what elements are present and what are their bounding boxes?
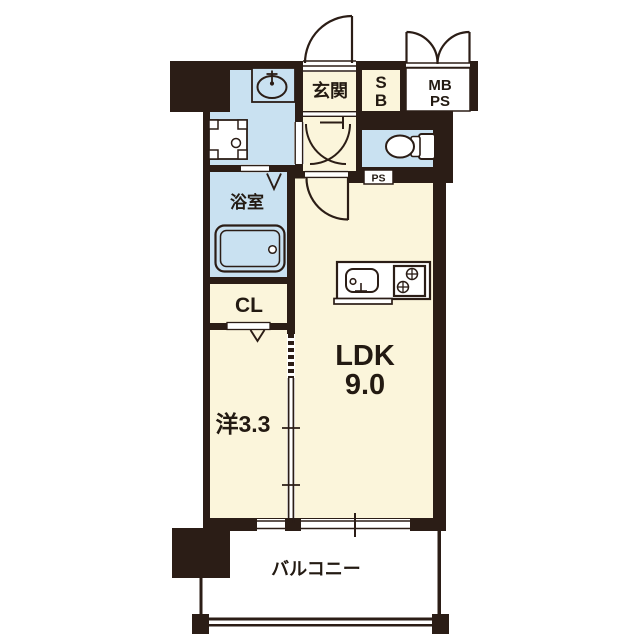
bathroom-door-opening: [241, 165, 269, 173]
wall-top-b: [356, 61, 406, 70]
wall-west: [203, 112, 210, 531]
stove-burner-2: [398, 282, 409, 293]
washbasin: [252, 68, 295, 102]
mbps-double-doors: [407, 32, 470, 64]
wall-partition-stub: [287, 323, 295, 334]
kitchen-counter: [334, 262, 430, 304]
wall-bath-top-left: [203, 165, 242, 172]
wall-hallway-pier: [348, 171, 356, 183]
pipe-space-label: PS: [371, 173, 385, 185]
toilet: [386, 134, 435, 159]
bathtub: [216, 226, 285, 272]
entrance-threshold: [303, 60, 356, 72]
balcony-rail-2: [209, 624, 432, 627]
shoebox-label-top: S: [375, 73, 386, 92]
ldk-door-sill: [305, 171, 348, 179]
wall-mbps-right: [470, 61, 478, 111]
western-room-label: 洋3.3: [216, 411, 271, 437]
washing-machine-pan: [209, 120, 247, 159]
genkan-label: 玄関: [312, 80, 348, 101]
genkan-step: [303, 111, 356, 117]
wall-bath-top-right: [268, 165, 303, 172]
wall-bath-bottom: [203, 277, 295, 284]
floor-plan-svg: 玄関 S B MB PS PS 浴室 CL 洋3.3 LDK 9.0 バルコニー: [0, 0, 640, 640]
closet-door-track: [227, 323, 270, 330]
wall-mass-bottomleft: [172, 528, 230, 578]
wall-cl-bottom-left: [203, 323, 227, 330]
entrance-door: [305, 16, 352, 63]
wall-mass-topleft: [170, 61, 230, 112]
balcony-left-line: [200, 578, 203, 617]
stove-burner-1: [407, 269, 418, 280]
balcony-right-line: [438, 531, 442, 614]
ldk-label: LDK: [335, 340, 395, 372]
washbasin-faucet-dot: [270, 81, 274, 85]
wall-sb-mbps: [400, 61, 406, 111]
balcony-post-right: [432, 614, 449, 634]
kitchen-toe-kick: [334, 299, 392, 305]
balcony-label: バルコニー: [271, 559, 361, 579]
meterbox-label-1: MB: [428, 77, 451, 94]
shoebox-label-bottom: B: [375, 91, 387, 110]
balcony-rail-1: [209, 618, 432, 621]
window-western-room: [257, 519, 285, 531]
wall-east: [433, 123, 446, 531]
closet-label: CL: [235, 294, 263, 317]
floor-plan: 玄関 S B MB PS PS 浴室 CL 洋3.3 LDK 9.0 バルコニー: [0, 0, 640, 640]
meterbox-label-2: PS: [430, 93, 450, 110]
balcony: [192, 531, 449, 634]
wall-bath-east: [287, 165, 295, 332]
bathroom-label: 浴室: [230, 192, 264, 212]
balcony-post-left: [192, 614, 209, 634]
washroom-door-opening: [294, 122, 304, 164]
ldk-size-label: 9.0: [345, 369, 385, 401]
